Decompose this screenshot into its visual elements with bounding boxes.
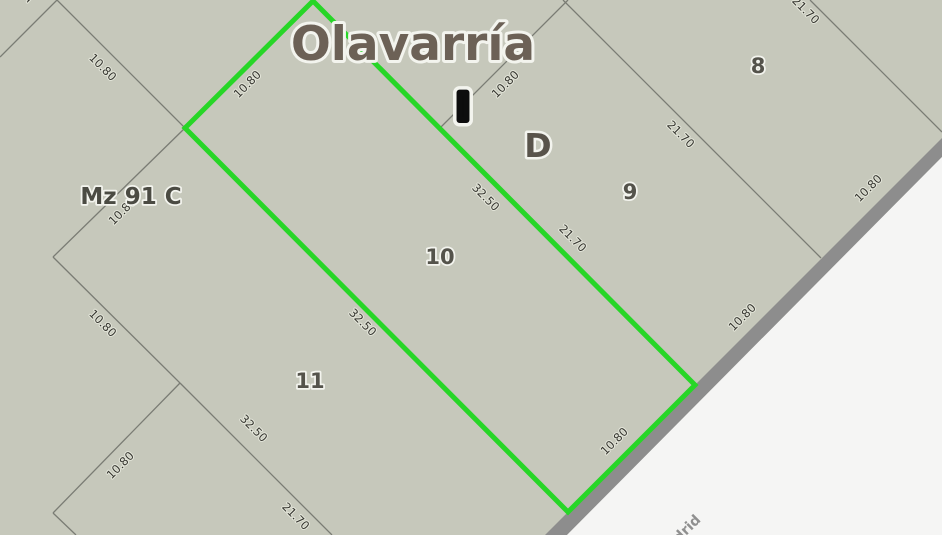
parcel-label-10: 10 (425, 245, 454, 269)
parcel-label-9: 9 (623, 180, 638, 204)
parcel-label-8: 8 (751, 54, 766, 78)
block-label: Mz 91 C (80, 184, 181, 210)
map-canvas[interactable]: 10.80 10.80 10.80 10.80 10.80 10.80 10.8… (0, 0, 942, 535)
parcel-letter-i: I (456, 86, 470, 129)
city-label: Olavarría (291, 17, 535, 72)
parcel-letter-d: D (524, 126, 551, 165)
map-viewport: 10.80 10.80 10.80 10.80 10.80 10.80 10.8… (0, 0, 942, 535)
parcel-label-11: 11 (295, 369, 324, 393)
